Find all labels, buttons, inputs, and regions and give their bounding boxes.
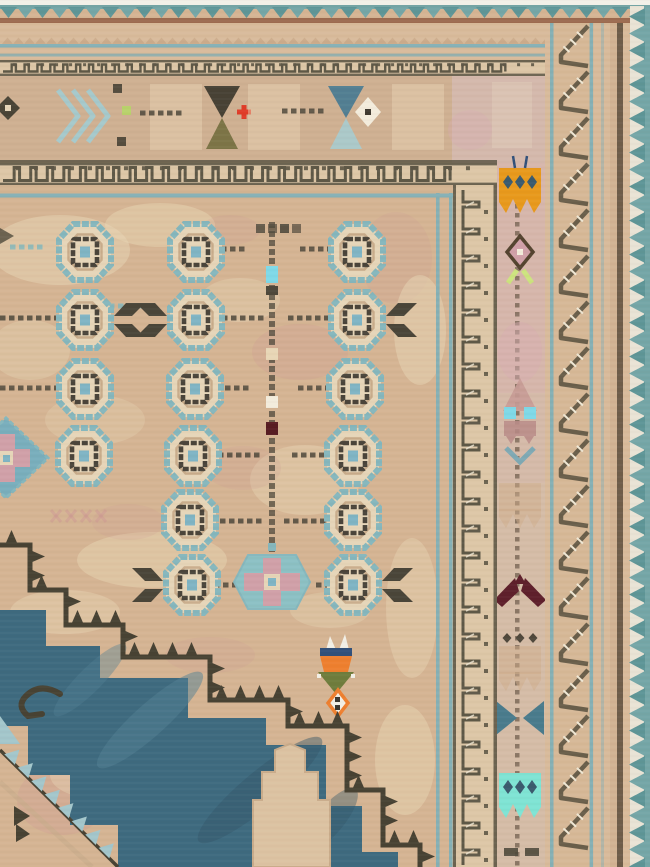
rug-image (0, 0, 650, 867)
rug-photograph (0, 0, 650, 867)
